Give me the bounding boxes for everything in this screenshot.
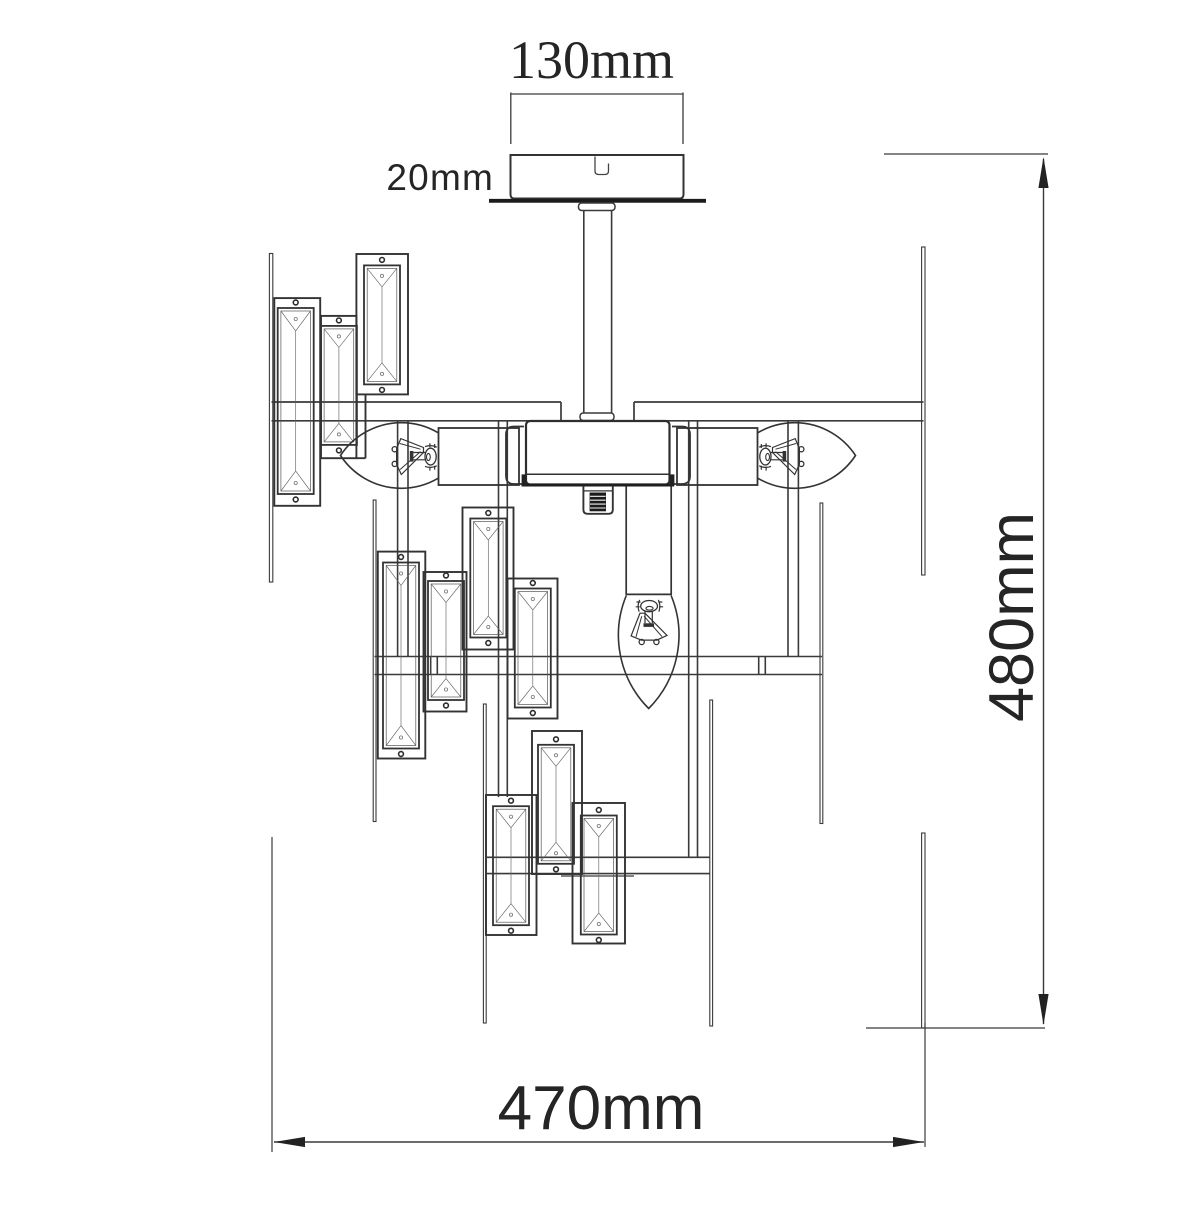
svg-text:20mm: 20mm — [386, 157, 494, 198]
svg-text:470mm: 470mm — [498, 1074, 705, 1143]
svg-text:130mm: 130mm — [509, 30, 674, 90]
svg-text:480mm: 480mm — [977, 512, 1047, 722]
